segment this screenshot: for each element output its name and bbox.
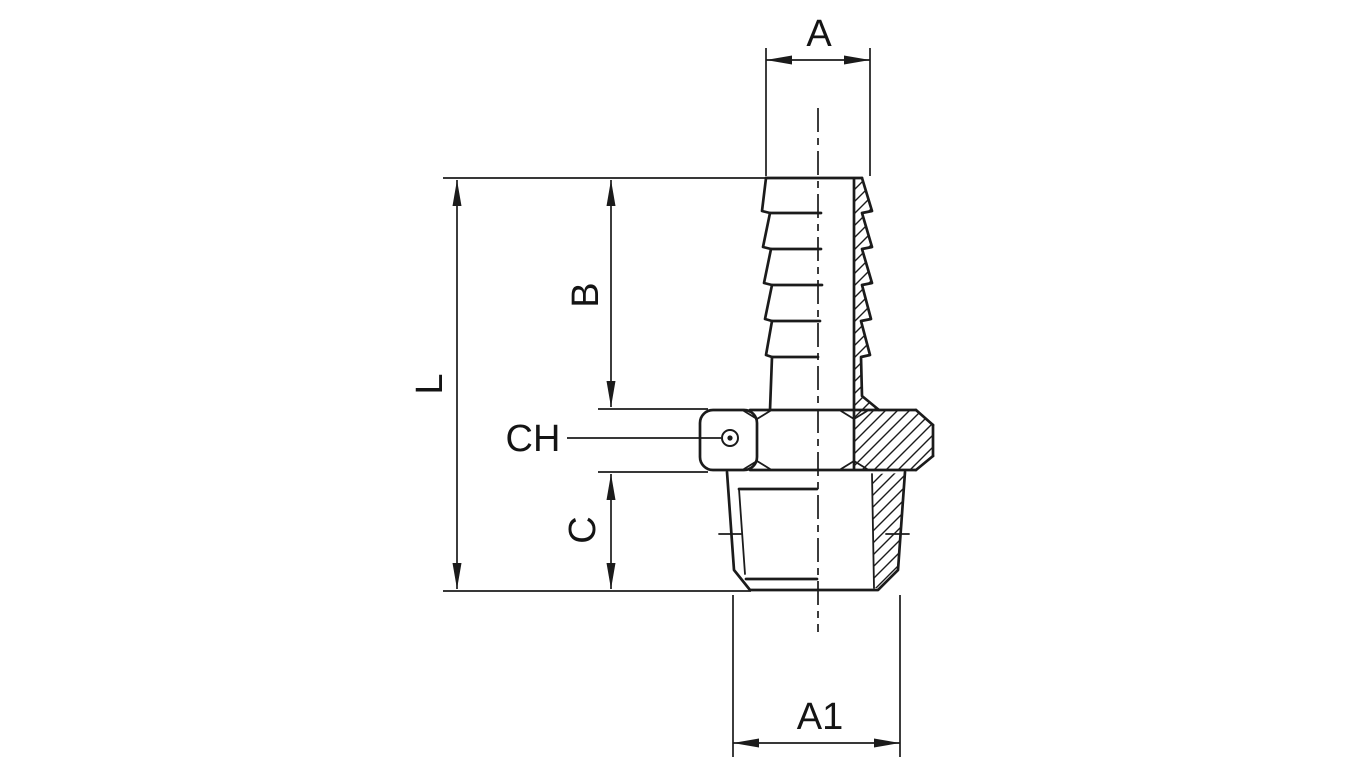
dimension-B: B <box>565 180 708 409</box>
part-thread-section <box>719 472 909 590</box>
arrowhead-down <box>607 381 616 407</box>
dimension-label-C: C <box>562 516 604 543</box>
arrowhead-right <box>844 56 870 65</box>
dimension-label-L: L <box>409 373 451 394</box>
dimension-A1: A1 <box>733 595 900 757</box>
arrowhead-down <box>453 563 462 589</box>
dimension-label-CH: CH <box>506 418 561 460</box>
arrowhead-left <box>733 739 759 748</box>
arrowhead-down <box>607 563 616 589</box>
dimension-label-A1: A1 <box>797 696 843 738</box>
arrowhead-up <box>607 180 616 206</box>
barb-right-serrated-profile <box>861 178 879 410</box>
dimension-CH: CH <box>506 418 721 460</box>
arrowhead-left <box>766 56 792 65</box>
part-hex-section <box>700 410 933 470</box>
technical-drawing: A L B C CH A1 <box>0 0 1360 768</box>
dimension-C: C <box>562 472 708 589</box>
hex-face-center-dot <box>727 435 732 440</box>
hex-section-hatching <box>854 411 932 469</box>
arrowhead-right <box>874 739 900 748</box>
dimension-label-B: B <box>565 282 607 307</box>
arrowhead-up <box>607 474 616 500</box>
thread-root-line-left <box>739 489 745 574</box>
barb-ridge-lines <box>770 213 822 357</box>
drawing-page: A L B C CH A1 <box>0 0 1360 768</box>
arrowhead-up <box>453 180 462 206</box>
dimension-label-A: A <box>806 13 832 55</box>
